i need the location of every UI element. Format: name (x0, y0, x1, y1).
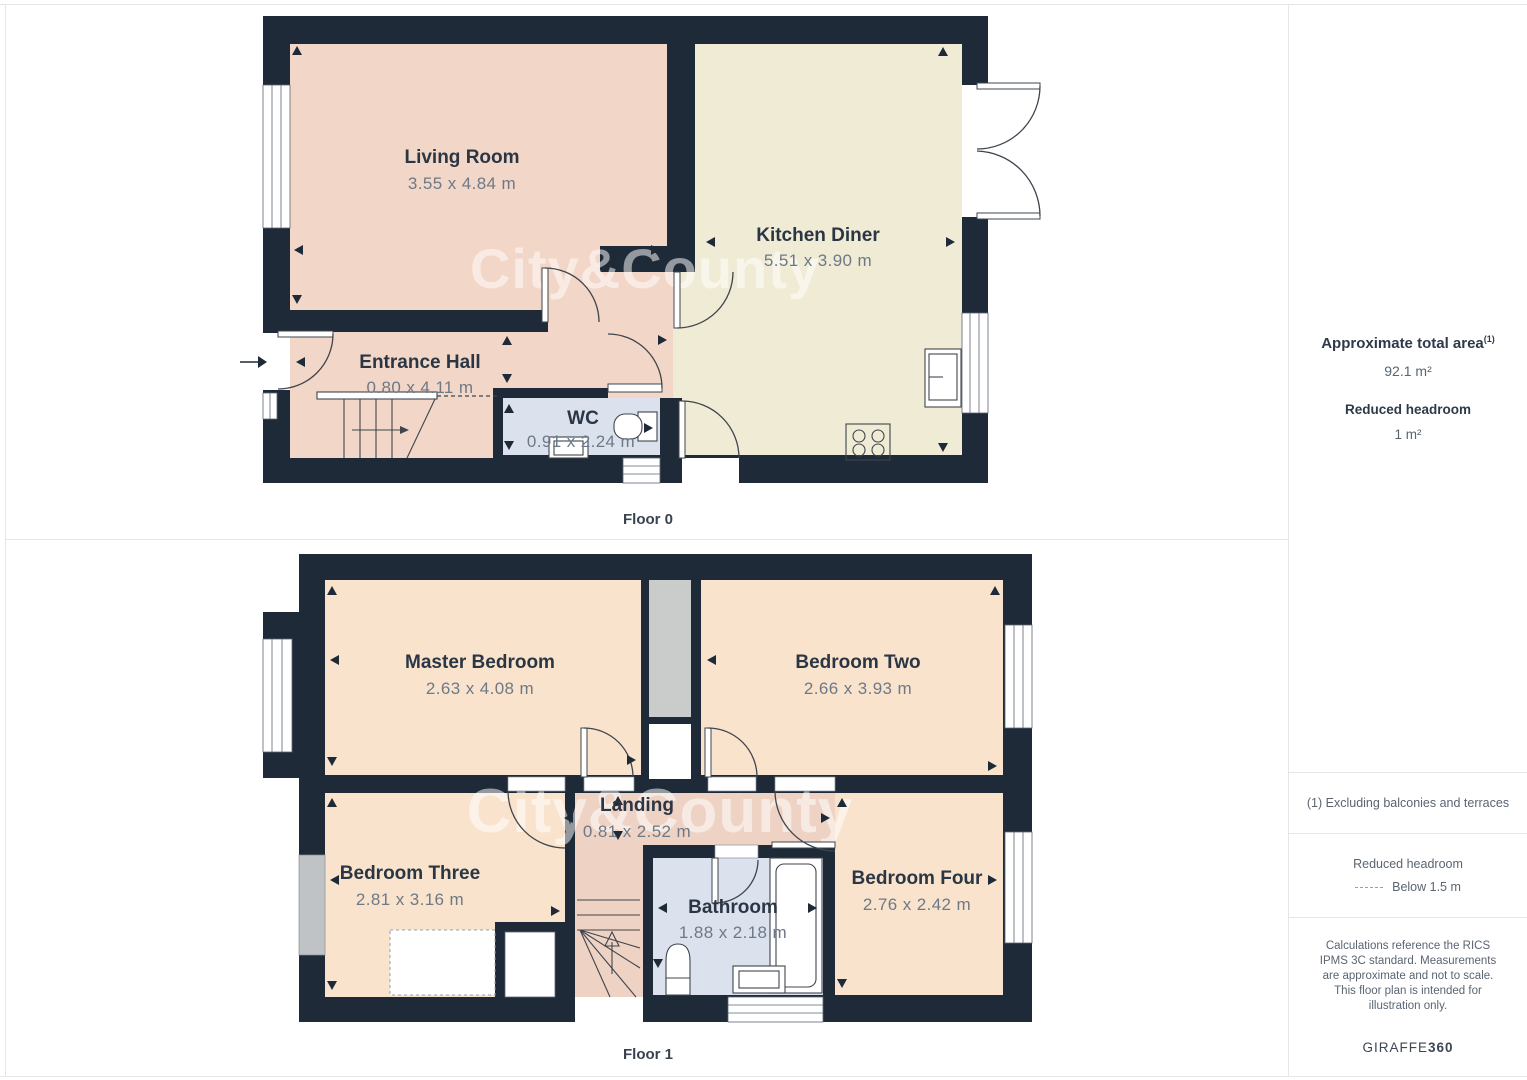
info-sidebar: Approximate total area(1) 92.1 m² Reduce… (1288, 4, 1527, 1076)
total-area-label: Approximate total area(1) (1321, 334, 1495, 352)
brand-text: GIRAFFE (1362, 1040, 1428, 1055)
room-dims-kitchen: 5.51 x 3.90 m (764, 251, 872, 270)
kitchen-sink (925, 349, 961, 407)
reduced-headroom-value: 1 m² (1395, 427, 1422, 442)
master-bedroom-floor (325, 580, 641, 775)
room-dims-bedroom-four: 2.76 x 2.42 m (863, 895, 971, 914)
bedroom-four-window (1005, 832, 1032, 943)
total-area-value: 92.1 m² (1384, 363, 1431, 379)
legend-item-text: Below 1.5 m (1392, 880, 1461, 894)
room-label-wc: WC (567, 408, 599, 429)
room-label-bedroom-three: Bedroom Three (340, 863, 480, 884)
total-area-label-text: Approximate total area (1321, 335, 1484, 352)
bathroom-sink (733, 966, 785, 993)
reduced-headroom-label: Reduced headroom (1345, 402, 1471, 417)
cupboard (505, 932, 555, 997)
wc-window (623, 458, 660, 483)
bedroom-four-door-opening (775, 777, 835, 791)
stairwell-void (649, 580, 691, 717)
kitchen-window (962, 313, 988, 413)
stairwell-top-landing (649, 724, 691, 779)
room-label-kitchen: Kitchen Diner (756, 225, 880, 246)
bedroom-three-window-gray (299, 855, 325, 955)
room-dims-bedroom-three: 2.81 x 3.16 m (356, 890, 464, 909)
floor1-plan: City&County (0, 539, 1288, 1080)
footnote-text: (1) Excluding balconies and terraces (1307, 796, 1509, 810)
room-dims-bathroom: 1.88 x 2.18 m (679, 923, 787, 942)
room-label-bedroom-two: Bedroom Two (795, 652, 920, 673)
living-hall-doorway-floor (548, 310, 600, 332)
total-area-footnote-marker: (1) (1484, 334, 1495, 344)
sidebar-footnote-panel: (1) Excluding balconies and terraces (1289, 772, 1527, 833)
bed-dashed (390, 930, 495, 995)
room-label-landing: Landing (600, 795, 674, 816)
room-dims-hall: 0.80 x 4.11 m (367, 378, 474, 397)
giraffe360-logo: GIRAFFE360 (1362, 1040, 1453, 1055)
room-label-living: Living Room (404, 147, 519, 168)
bathroom-door-opening (715, 845, 758, 858)
entry-arrow-icon (240, 356, 267, 368)
room-dims-wc: 0.91 x 2.24 m (527, 432, 635, 451)
living-room-window (263, 85, 290, 228)
disclaimer-text: Calculations reference the RICS IPMS 3C … (1315, 939, 1501, 1014)
back-door-opening (682, 458, 739, 483)
dashed-line-swatch (1355, 887, 1383, 888)
chimney-window (263, 639, 292, 752)
bedroom-two-door-opening (708, 777, 756, 791)
floor1-label: Floor 1 (623, 1046, 673, 1063)
brand-bold-text: 360 (1428, 1040, 1454, 1055)
master-door-opening (584, 777, 634, 791)
bathroom-toilet (666, 944, 690, 995)
room-label-bathroom: Bathroom (688, 897, 778, 918)
room-dims-master: 2.63 x 4.08 m (426, 679, 534, 698)
room-dims-bedroom-two: 2.66 x 3.93 m (804, 679, 912, 698)
sidebar-legend-panel: Reduced headroom Below 1.5 m (1289, 833, 1527, 917)
bathroom-bottom-window (728, 997, 823, 1022)
room-dims-landing: 0.81 x 2.52 m (583, 822, 691, 841)
room-dims-living: 3.55 x 4.84 m (408, 174, 516, 193)
legend-title: Reduced headroom (1353, 857, 1463, 871)
hall-small-window (263, 393, 277, 419)
sidebar-disclaimer-panel: Calculations reference the RICS IPMS 3C … (1289, 917, 1527, 1076)
bedroom-four-floor (835, 793, 1003, 995)
wc-wall-patch (600, 388, 608, 398)
sidebar-area-panel: Approximate total area(1) 92.1 m² Reduce… (1289, 4, 1527, 772)
floor0-label: Floor 0 (623, 511, 673, 528)
floor0-plan: City&County (0, 0, 1288, 539)
legend-row: Below 1.5 m (1355, 880, 1461, 894)
front-door-opening (263, 333, 290, 390)
room-label-hall: Entrance Hall (359, 352, 480, 373)
bedroom-three-door-opening (508, 777, 565, 791)
stairwell-bottom-opening (575, 997, 643, 1022)
room-label-master: Master Bedroom (405, 652, 555, 673)
bedroom-two-window (1005, 625, 1032, 728)
room-label-bedroom-four: Bedroom Four (852, 868, 983, 889)
